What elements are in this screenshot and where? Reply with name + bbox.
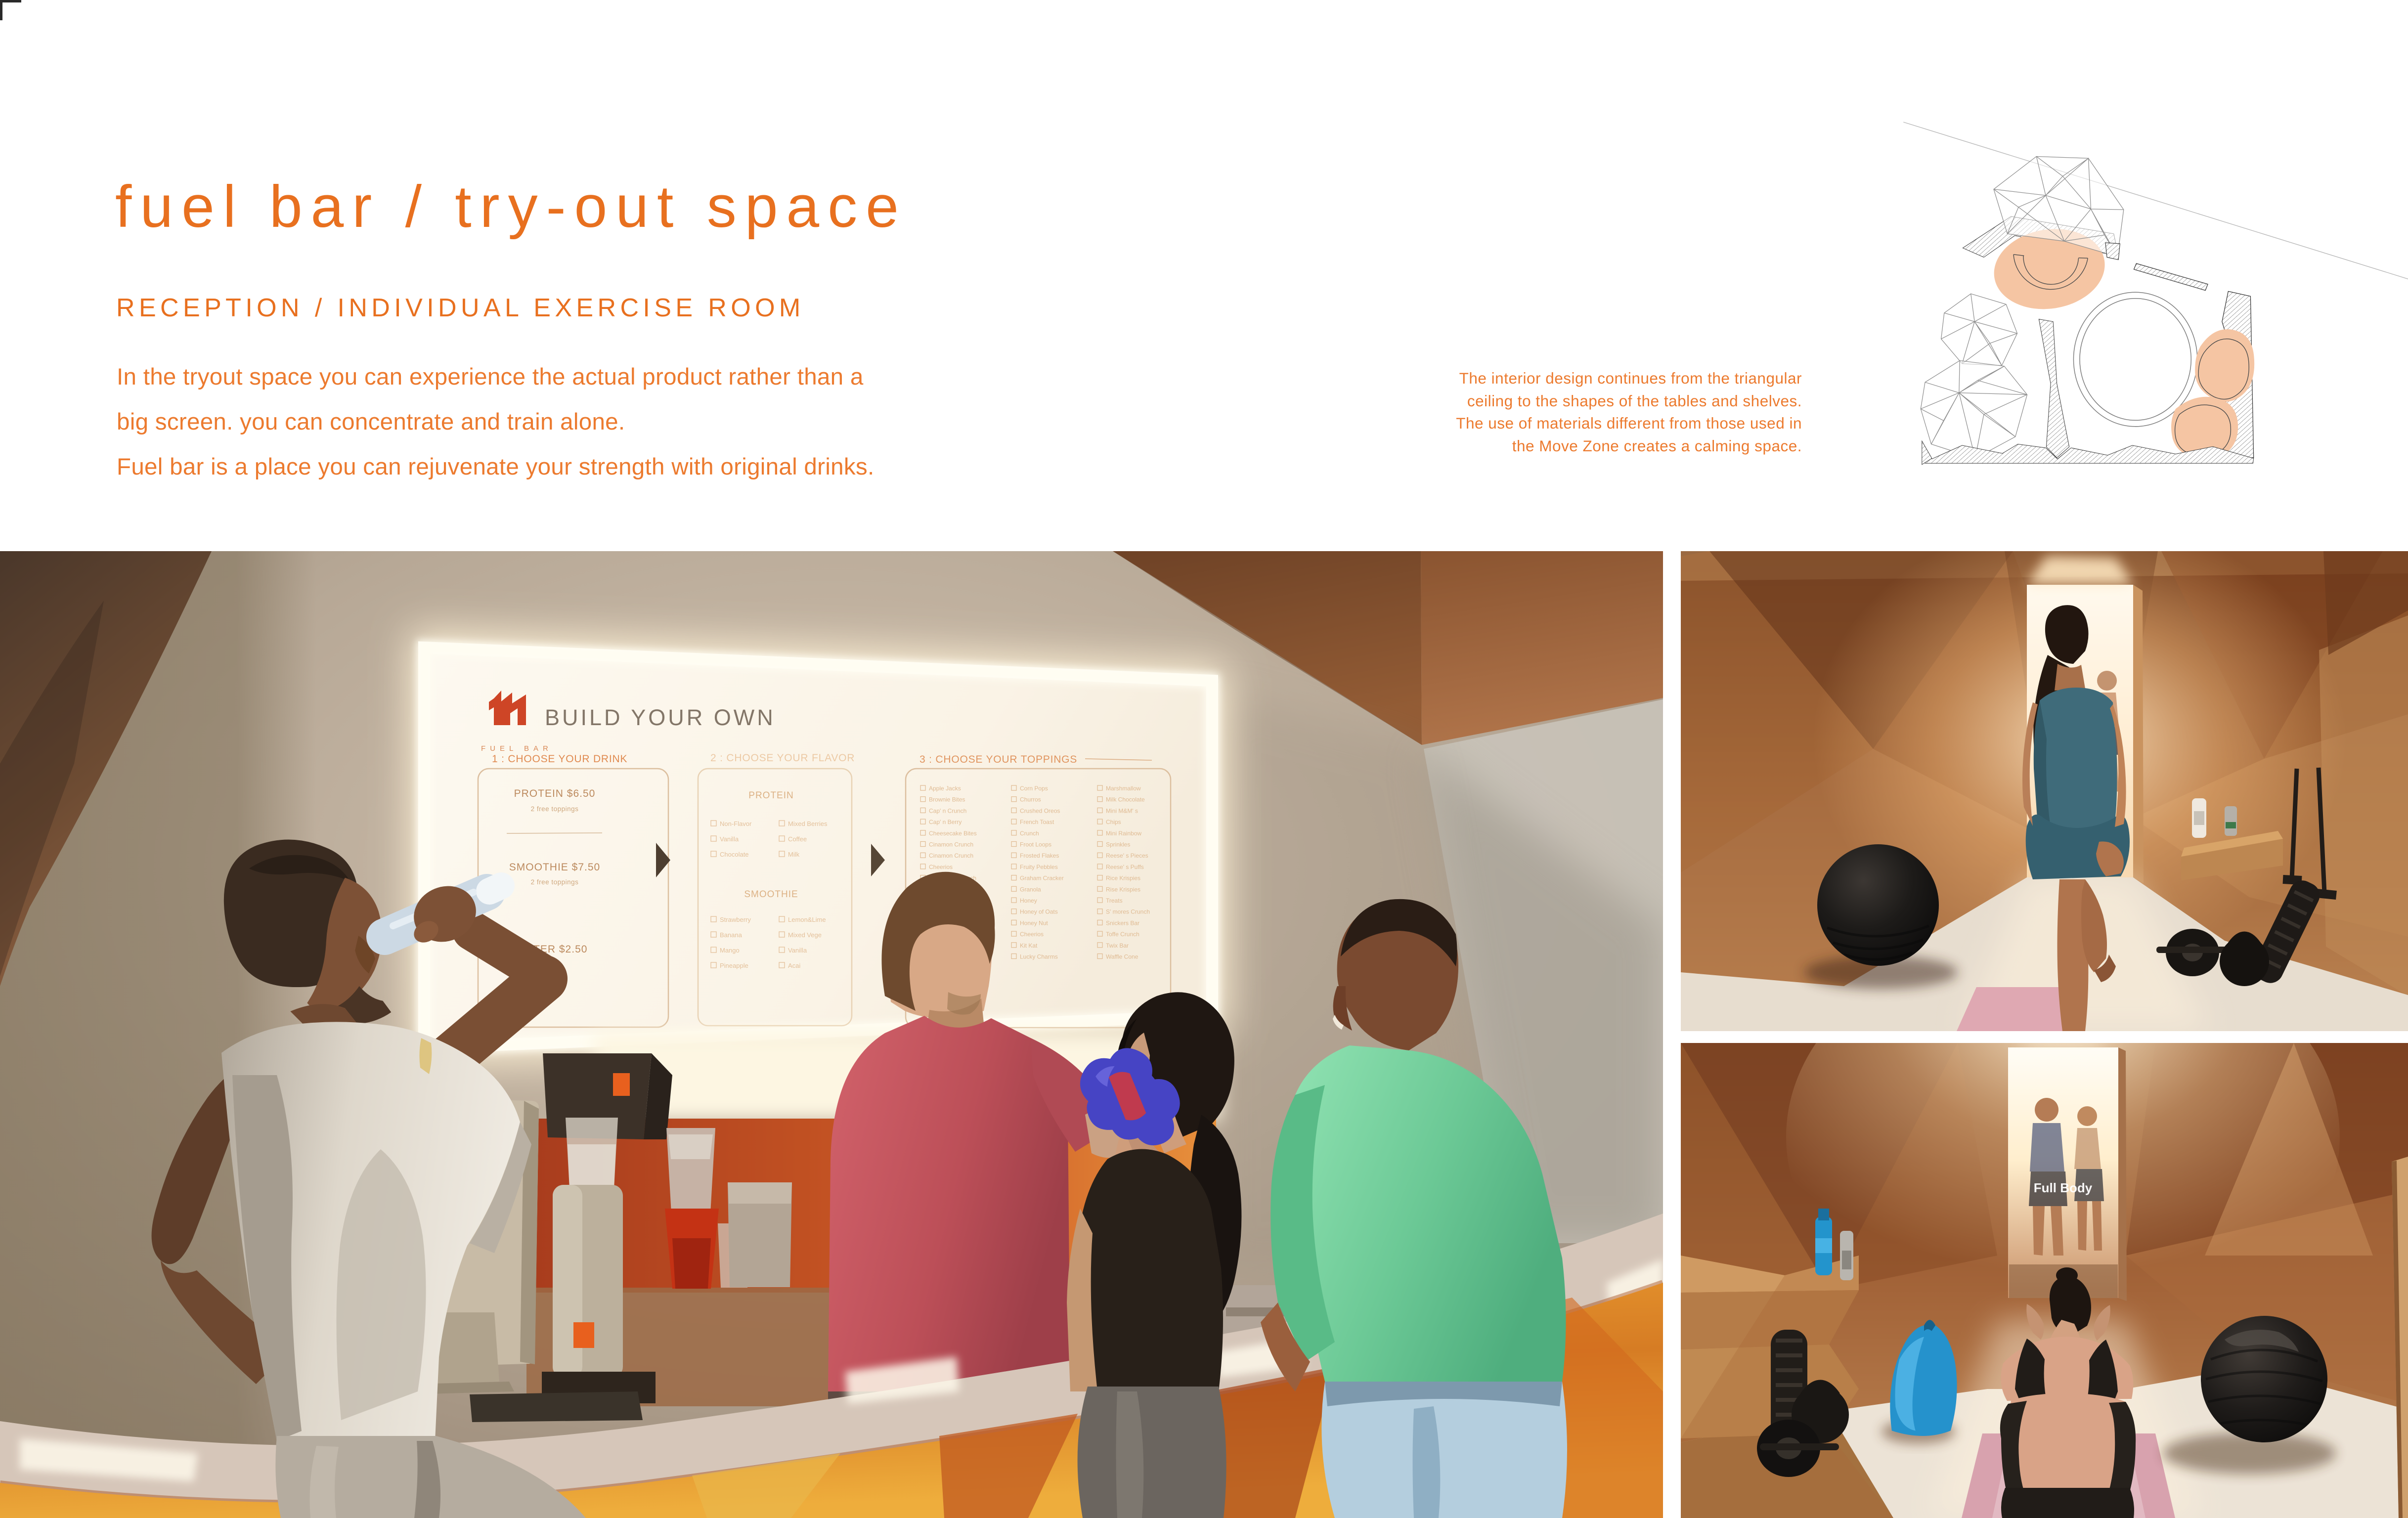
svg-text:Cap' n Berry: Cap' n Berry bbox=[929, 819, 962, 825]
svg-text:2 free toppings: 2 free toppings bbox=[531, 878, 579, 886]
svg-text:Frosted Flakes: Frosted Flakes bbox=[1020, 852, 1059, 859]
svg-text:Banana: Banana bbox=[720, 931, 743, 939]
svg-text:Honey: Honey bbox=[1020, 897, 1037, 904]
svg-text:Chocolate: Chocolate bbox=[720, 851, 749, 858]
svg-text:Snickers Bar: Snickers Bar bbox=[1106, 919, 1139, 926]
svg-text:Honey Nut: Honey Nut bbox=[1020, 919, 1048, 926]
svg-text:Fruity Pebbles: Fruity Pebbles bbox=[1020, 864, 1058, 870]
svg-text:Waffle Cone: Waffle Cone bbox=[1106, 954, 1138, 960]
svg-text:Lucky Charms: Lucky Charms bbox=[1020, 954, 1058, 960]
svg-text:Reese' s Pieces: Reese' s Pieces bbox=[1106, 852, 1148, 859]
svg-text:Cheerios: Cheerios bbox=[929, 864, 953, 870]
svg-text:Rise Krispies: Rise Krispies bbox=[1106, 886, 1140, 893]
svg-text:Granola: Granola bbox=[1020, 886, 1041, 893]
svg-text:Mixed Vege: Mixed Vege bbox=[788, 931, 822, 939]
svg-text:Strawberry: Strawberry bbox=[720, 916, 751, 923]
svg-text:Sprinkles: Sprinkles bbox=[1106, 841, 1130, 848]
svg-text:Mini M&M' s: Mini M&M' s bbox=[1106, 807, 1138, 814]
svg-text:Cap' n Crunch: Cap' n Crunch bbox=[929, 807, 966, 814]
svg-text:Treats: Treats bbox=[1106, 897, 1123, 904]
svg-text:3 : CHOOSE YOUR TOPPINGS: 3 : CHOOSE YOUR TOPPINGS bbox=[919, 754, 1077, 765]
svg-text:Vanilla: Vanilla bbox=[720, 835, 739, 843]
svg-text:Vanilla: Vanilla bbox=[788, 947, 807, 954]
svg-text:Froot Loops: Froot Loops bbox=[1020, 841, 1051, 848]
svg-text:2 free toppings: 2 free toppings bbox=[531, 805, 579, 813]
svg-text:Toffe Crunch: Toffe Crunch bbox=[1106, 931, 1139, 938]
svg-text:Coffee: Coffee bbox=[788, 835, 807, 843]
svg-text:Apple Jacks: Apple Jacks bbox=[929, 785, 961, 792]
svg-text:Corn Pops: Corn Pops bbox=[1020, 785, 1048, 792]
svg-text:Cheerios: Cheerios bbox=[1020, 931, 1044, 938]
svg-text:Churros: Churros bbox=[1020, 796, 1041, 803]
svg-text:Full Body: Full Body bbox=[2034, 1180, 2093, 1195]
svg-text:Non-Flavor: Non-Flavor bbox=[720, 820, 752, 827]
svg-text:Mango: Mango bbox=[720, 947, 740, 954]
svg-text:Twix Bar: Twix Bar bbox=[1106, 942, 1129, 949]
svg-text:Rice Krispies: Rice Krispies bbox=[1106, 875, 1140, 882]
svg-text:Cinamon Crunch: Cinamon Crunch bbox=[929, 841, 973, 848]
svg-text:Brownie Bites: Brownie Bites bbox=[929, 796, 965, 803]
svg-text:Reese' s Puffs: Reese' s Puffs bbox=[1106, 864, 1144, 870]
svg-text:Kit Kat: Kit Kat bbox=[1020, 942, 1038, 949]
svg-text:Milk Chocolate: Milk Chocolate bbox=[1106, 796, 1145, 803]
svg-text:Mixed Berries: Mixed Berries bbox=[788, 820, 828, 827]
svg-text:Mini Rainbow: Mini Rainbow bbox=[1106, 830, 1141, 837]
svg-text:1 : CHOOSE YOUR DRINK: 1 : CHOOSE YOUR DRINK bbox=[492, 753, 627, 765]
svg-text:French Toast: French Toast bbox=[1020, 819, 1054, 825]
svg-text:PROTEIN: PROTEIN bbox=[748, 790, 793, 801]
svg-text:2 : CHOOSE YOUR FLAVOR: 2 : CHOOSE YOUR FLAVOR bbox=[710, 752, 855, 764]
svg-text:SMOOTHIE: SMOOTHIE bbox=[744, 889, 798, 900]
svg-text:PROTEIN $6.50: PROTEIN $6.50 bbox=[514, 788, 596, 799]
svg-text:S' mores Crunch: S' mores Crunch bbox=[1106, 909, 1150, 915]
svg-text:Milk: Milk bbox=[788, 851, 800, 858]
svg-text:Graham Cracker: Graham Cracker bbox=[1020, 875, 1064, 882]
svg-text:Chips: Chips bbox=[1106, 819, 1121, 825]
svg-text:Cinamon Crunch: Cinamon Crunch bbox=[929, 852, 973, 859]
svg-text:Pineapple: Pineapple bbox=[720, 962, 748, 969]
svg-text:BUILD YOUR OWN: BUILD YOUR OWN bbox=[545, 705, 776, 730]
svg-text:Marshmallow: Marshmallow bbox=[1106, 785, 1141, 792]
svg-text:Crushed Oreos: Crushed Oreos bbox=[1020, 807, 1060, 814]
svg-text:Crunch: Crunch bbox=[1020, 830, 1039, 837]
svg-text:Honey of Oats: Honey of Oats bbox=[1020, 909, 1058, 915]
svg-text:FUEL BAR: FUEL BAR bbox=[481, 744, 553, 753]
svg-text:Cheesecake Bites: Cheesecake Bites bbox=[929, 830, 977, 837]
svg-text:SMOOTHIE $7.50: SMOOTHIE $7.50 bbox=[509, 862, 600, 873]
svg-text:Acai: Acai bbox=[788, 962, 800, 969]
svg-text:Lemon&Lime: Lemon&Lime bbox=[788, 916, 826, 923]
